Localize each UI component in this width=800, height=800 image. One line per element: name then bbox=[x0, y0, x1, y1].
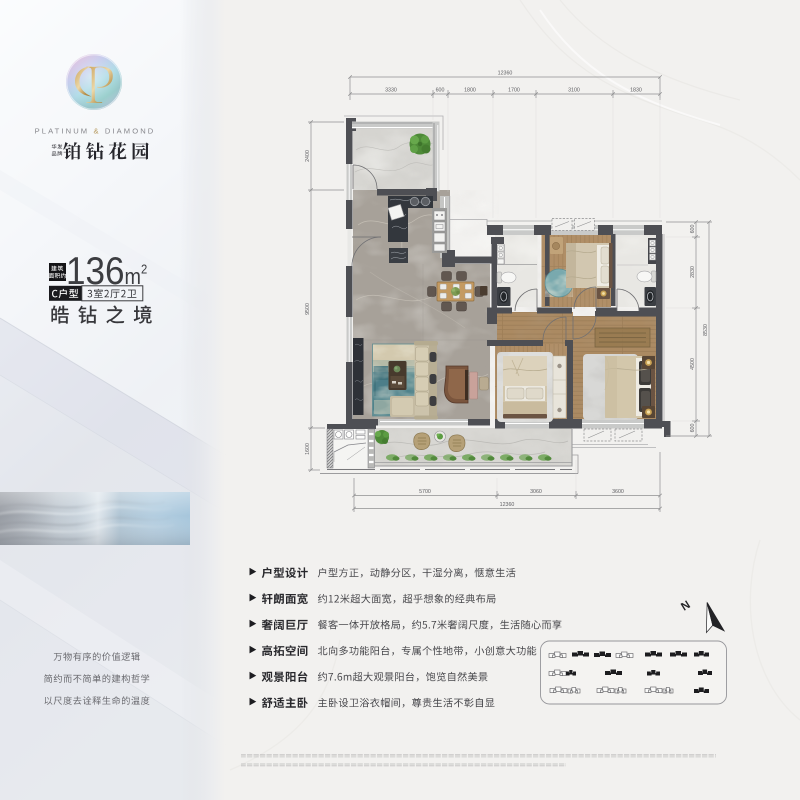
svg-text:2830: 2830 bbox=[690, 266, 696, 278]
svg-text:8530: 8530 bbox=[703, 324, 709, 336]
svg-text:600: 600 bbox=[436, 88, 445, 94]
svg-text:3100: 3100 bbox=[568, 88, 580, 94]
svg-text:PLATINUM & DIAMOND: PLATINUM & DIAMOND bbox=[35, 127, 156, 136]
svg-text:1700: 1700 bbox=[508, 88, 520, 94]
svg-text:12360: 12360 bbox=[500, 502, 515, 508]
svg-text:3330: 3330 bbox=[385, 88, 397, 94]
svg-text:1830: 1830 bbox=[630, 88, 642, 94]
svg-text:1600: 1600 bbox=[305, 443, 311, 455]
svg-text:5700: 5700 bbox=[419, 489, 431, 495]
svg-text:600: 600 bbox=[690, 424, 696, 433]
svg-text:3060: 3060 bbox=[530, 489, 542, 495]
svg-text:3600: 3600 bbox=[612, 489, 624, 495]
svg-text:12360: 12360 bbox=[498, 71, 513, 77]
svg-text:2400: 2400 bbox=[305, 150, 311, 162]
svg-text:4500: 4500 bbox=[690, 358, 696, 370]
svg-text:600: 600 bbox=[690, 225, 696, 234]
svg-text:1800: 1800 bbox=[464, 88, 476, 94]
svg-text:9500: 9500 bbox=[305, 303, 311, 315]
